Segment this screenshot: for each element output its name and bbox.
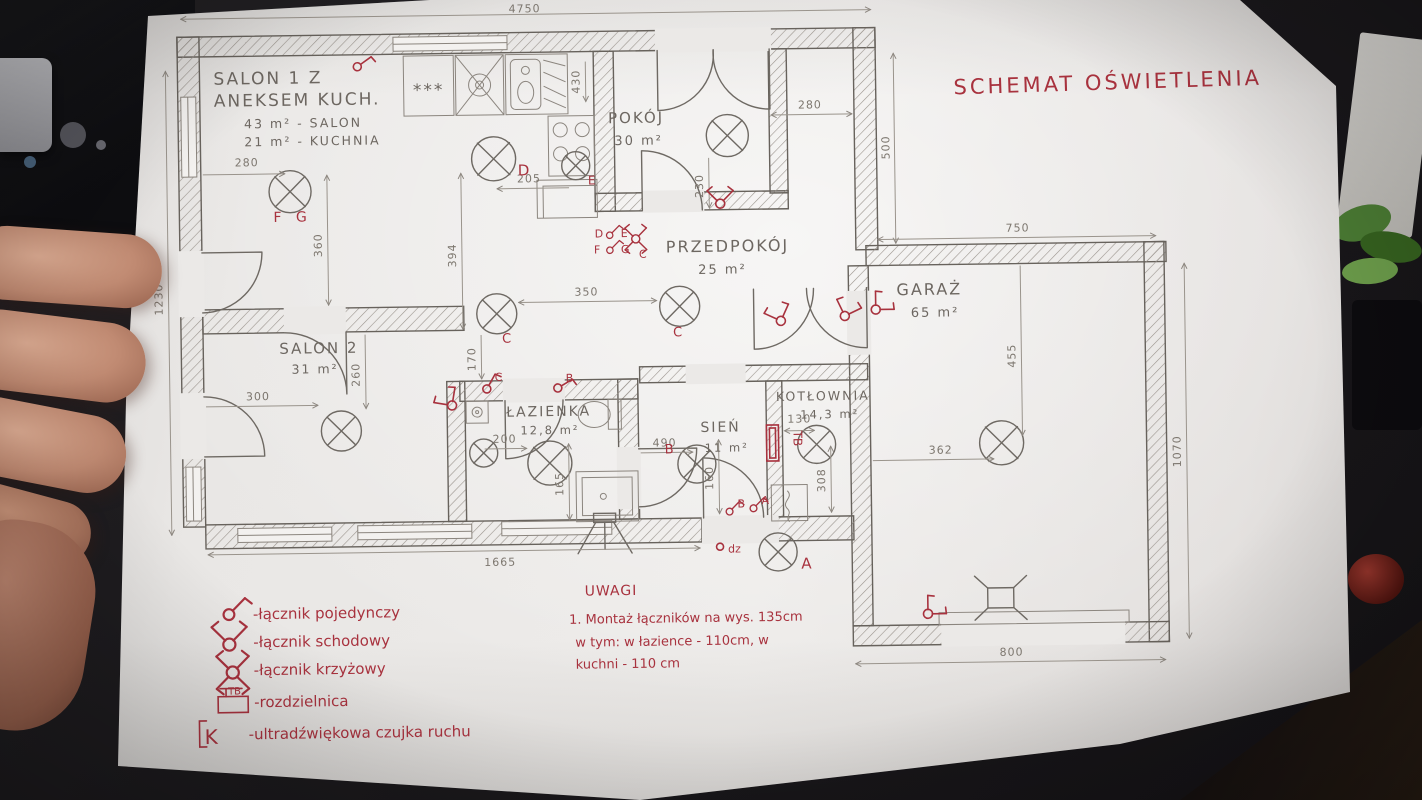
finger (0, 305, 150, 407)
monitor-icon (24, 156, 36, 168)
background-gadget (1352, 300, 1422, 430)
plant-leaf (1341, 256, 1399, 286)
finger (0, 390, 133, 499)
background-device (0, 58, 52, 152)
background-red-object (1348, 554, 1404, 604)
monitor-icon (96, 140, 106, 150)
monitor-icon (60, 122, 86, 148)
photo-scene: *** (0, 0, 1422, 800)
finger (0, 223, 164, 310)
paper-sheet (0, 0, 1422, 800)
palm (0, 509, 105, 740)
